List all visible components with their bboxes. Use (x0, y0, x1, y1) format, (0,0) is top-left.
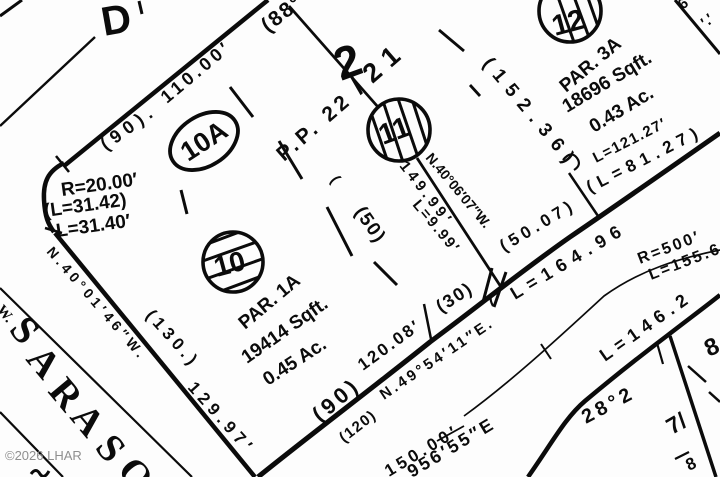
svg-text:©2026 LHAR: ©2026 LHAR (5, 448, 82, 463)
